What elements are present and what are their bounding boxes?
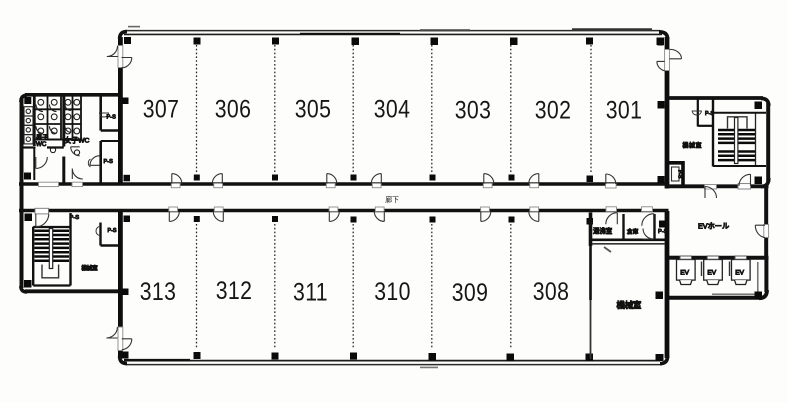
svg-text:機械室: 機械室 (82, 264, 99, 272)
svg-text:倉庫: 倉庫 (627, 228, 639, 236)
svg-text:310: 310 (374, 277, 410, 305)
svg-text:305: 305 (295, 95, 331, 123)
svg-text:307: 307 (143, 95, 179, 123)
svg-text:P-S: P-S (107, 115, 117, 121)
svg-text:P-S: P-S (677, 170, 683, 179)
svg-text:P-S: P-S (658, 229, 668, 235)
svg-text:EVホール: EVホール (698, 221, 729, 230)
svg-text:303: 303 (455, 96, 491, 124)
svg-text:311: 311 (293, 278, 328, 306)
svg-text:機械室: 機械室 (617, 300, 642, 310)
svg-text:WC: WC (36, 141, 47, 148)
svg-text:309: 309 (452, 278, 488, 306)
svg-text:EV: EV (680, 270, 689, 277)
svg-text:P-S: P-S (104, 159, 114, 165)
svg-text:312: 312 (216, 276, 252, 304)
svg-text:P-S: P-S (108, 228, 117, 234)
svg-text:機械室: 機械室 (683, 142, 703, 150)
svg-text:女子WC: 女子WC (65, 136, 90, 145)
svg-text:EV: EV (735, 270, 744, 277)
svg-text:302: 302 (535, 96, 571, 124)
svg-text:湯沸室: 湯沸室 (593, 226, 613, 235)
svg-text:308: 308 (533, 277, 569, 305)
svg-text:306: 306 (215, 95, 251, 123)
svg-text:301: 301 (606, 96, 642, 124)
svg-text:廊下: 廊下 (385, 195, 399, 204)
svg-text:EV: EV (707, 270, 716, 277)
svg-text:313: 313 (140, 277, 176, 305)
svg-text:P-S: P-S (70, 215, 80, 221)
svg-text:304: 304 (374, 95, 410, 123)
